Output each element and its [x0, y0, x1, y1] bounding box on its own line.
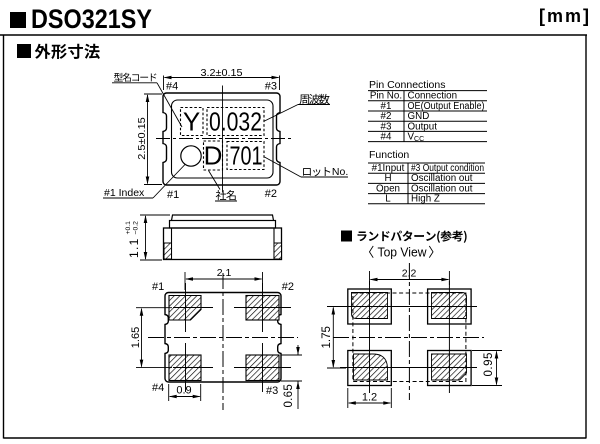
svg-text:1.1: 1.1	[127, 237, 141, 258]
svg-text:3.2±0.15: 3.2±0.15	[201, 68, 243, 79]
svg-text:#4: #4	[381, 132, 392, 143]
svg-text:#2: #2	[282, 281, 294, 293]
svg-text:−0.2: −0.2	[132, 221, 139, 235]
svg-text:#3: #3	[265, 81, 277, 93]
svg-text:0.032: 0.032	[209, 107, 262, 137]
svg-text:+0.1: +0.1	[125, 221, 132, 235]
svg-text:1.65: 1.65	[130, 327, 142, 348]
svg-text:DSO321SY: DSO321SY	[31, 4, 152, 34]
svg-text:#2: #2	[265, 188, 277, 200]
svg-text:High Z: High Z	[411, 194, 440, 205]
svg-text:Y: Y	[183, 107, 200, 137]
svg-text:#4: #4	[152, 382, 164, 394]
svg-text:No.: No.	[329, 166, 348, 178]
svg-text:1.2: 1.2	[362, 392, 377, 404]
svg-text:Pin Connections: Pin Connections	[369, 79, 445, 91]
svg-text:0.65: 0.65	[283, 384, 295, 408]
svg-text:#1: #1	[152, 281, 164, 293]
svg-text:1.75: 1.75	[321, 326, 333, 348]
svg-text:D: D	[204, 141, 223, 171]
svg-text:#4: #4	[166, 81, 178, 93]
svg-text:Function: Function	[369, 149, 409, 161]
svg-text:2.2: 2.2	[402, 268, 417, 280]
svg-text:#1: #1	[167, 189, 179, 201]
svg-text:701: 701	[230, 141, 263, 171]
svg-text:2.1: 2.1	[217, 267, 232, 279]
svg-text:Top View: Top View	[378, 245, 428, 260]
svg-text:#3: #3	[266, 385, 278, 397]
svg-text:L: L	[385, 194, 391, 205]
svg-text:2.5±0.15: 2.5±0.15	[137, 117, 148, 160]
svg-text:0.9: 0.9	[176, 385, 191, 397]
svg-text:[mm]: [mm]	[539, 6, 591, 26]
svg-text:0.95: 0.95	[483, 352, 495, 376]
svg-text:#1 Index: #1 Index	[104, 187, 145, 199]
svg-text:Connection: Connection	[408, 90, 458, 101]
